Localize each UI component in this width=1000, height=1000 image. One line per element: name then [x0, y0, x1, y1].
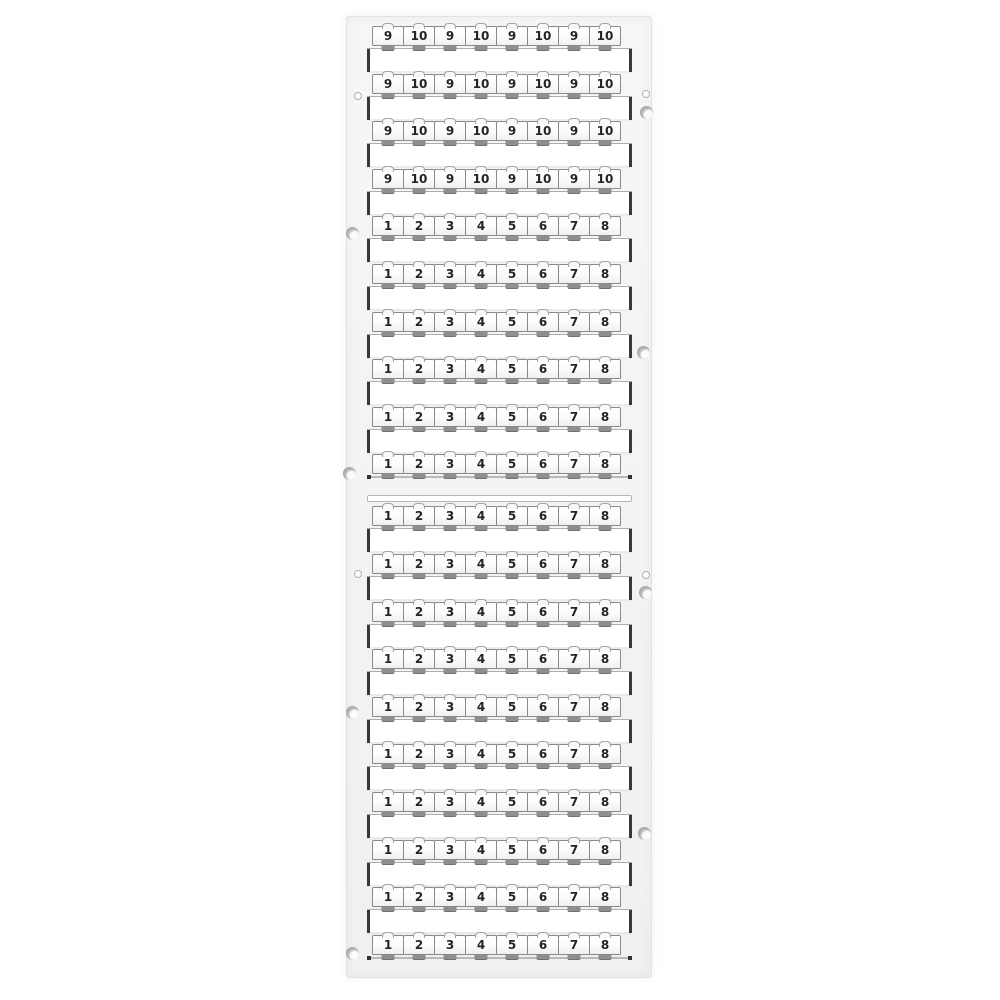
- marker-tag-label: 7: [570, 603, 578, 621]
- marker-tag-label: 5: [508, 745, 516, 763]
- marker-tag-label: 8: [601, 507, 609, 525]
- blank-strip: [367, 334, 632, 358]
- marker-tag: 8: [589, 602, 621, 622]
- marker-tag: 4: [465, 359, 497, 379]
- blank-strip: [367, 719, 632, 743]
- blank-strip: [367, 766, 632, 790]
- blank-strip: [367, 143, 632, 167]
- marker-tag-label: 1: [384, 603, 392, 621]
- blank-strip: [367, 814, 632, 838]
- section-end-line: [367, 476, 632, 478]
- marker-tag-label: 2: [415, 650, 423, 668]
- marker-tag: 8: [589, 649, 621, 669]
- marker-tag-label: 5: [508, 507, 516, 525]
- product-photo: 9109109109109109109109109109109109109109…: [0, 0, 1000, 1000]
- marker-tag-label: 10: [535, 75, 552, 93]
- marker-tag: 4: [465, 697, 497, 717]
- marker-tag: 7: [558, 697, 590, 717]
- marker-tag-label: 6: [539, 555, 547, 573]
- marker-tag-label: 5: [508, 841, 516, 859]
- marker-tag-label: 6: [539, 360, 547, 378]
- marker-tag: 1: [372, 407, 404, 427]
- marker-tag-label: 8: [601, 841, 609, 859]
- marker-tag: 3: [434, 792, 466, 812]
- marker-tag-label: 8: [601, 745, 609, 763]
- blank-strip: [367, 286, 632, 310]
- marker-strip-row: 12345678: [372, 407, 628, 427]
- marker-tag-label: 1: [384, 888, 392, 906]
- marker-tag: 9: [372, 169, 404, 189]
- marker-strip-row: 12345678: [372, 554, 628, 574]
- molded-stud: [346, 706, 359, 719]
- marker-tag-label: 4: [477, 841, 485, 859]
- marker-tag: 1: [372, 840, 404, 860]
- marker-strip-row: 12345678: [372, 506, 628, 526]
- marker-tag-label: 5: [508, 455, 516, 473]
- marker-tag-label: 9: [570, 27, 578, 45]
- marker-tag-label: 5: [508, 217, 516, 235]
- marker-tag: 5: [496, 840, 528, 860]
- marker-tag: 5: [496, 407, 528, 427]
- marker-tag: 10: [527, 74, 559, 94]
- marker-tag: 8: [589, 554, 621, 574]
- marker-tag: 10: [589, 74, 621, 94]
- marker-tag-label: 8: [601, 650, 609, 668]
- marker-strip-row: 12345678: [372, 454, 628, 474]
- marker-tag: 3: [434, 602, 466, 622]
- marker-tag-label: 10: [473, 75, 490, 93]
- marker-tag-label: 8: [601, 555, 609, 573]
- marker-tag: 2: [403, 887, 435, 907]
- marker-tag: 6: [527, 887, 559, 907]
- marker-tag: 2: [403, 792, 435, 812]
- blank-strip: [367, 381, 632, 405]
- marker-tag: 4: [465, 744, 497, 764]
- marker-tag: 4: [465, 216, 497, 236]
- marker-tag: 10: [465, 121, 497, 141]
- marker-tag: 3: [434, 887, 466, 907]
- marker-tag: 2: [403, 840, 435, 860]
- marker-tag-label: 8: [601, 698, 609, 716]
- marker-tag: 9: [372, 121, 404, 141]
- marker-tag: 6: [527, 935, 559, 955]
- marker-tag: 4: [465, 407, 497, 427]
- marker-tag-label: 10: [411, 27, 428, 45]
- marker-tag: 10: [589, 121, 621, 141]
- marker-tag: 6: [527, 506, 559, 526]
- marker-tag: 1: [372, 602, 404, 622]
- marker-tag-label: 4: [477, 408, 485, 426]
- molded-stud: [638, 827, 651, 840]
- marker-tag: 4: [465, 935, 497, 955]
- marker-tag: 4: [465, 792, 497, 812]
- marker-tag-label: 10: [535, 170, 552, 188]
- blank-strip: [367, 862, 632, 886]
- marker-tag-label: 10: [597, 122, 614, 140]
- marker-tag-label: 4: [477, 745, 485, 763]
- marker-tag: 2: [403, 506, 435, 526]
- marker-tag: 8: [589, 454, 621, 474]
- marker-tag-label: 4: [477, 360, 485, 378]
- marker-tag: 9: [558, 169, 590, 189]
- marker-tag: 5: [496, 454, 528, 474]
- marker-tag-label: 2: [415, 408, 423, 426]
- marker-tag: 9: [558, 26, 590, 46]
- marker-tag: 3: [434, 935, 466, 955]
- marker-tag: 4: [465, 887, 497, 907]
- marker-tag: 10: [465, 74, 497, 94]
- marker-tag: 9: [372, 74, 404, 94]
- marker-tag: 9: [434, 74, 466, 94]
- marker-tag-label: 4: [477, 313, 485, 331]
- marker-tag: 7: [558, 887, 590, 907]
- marker-tag: 6: [527, 602, 559, 622]
- marker-tag-label: 2: [415, 793, 423, 811]
- marker-tag: 5: [496, 554, 528, 574]
- section-end-line: [367, 957, 632, 959]
- marker-tag: 2: [403, 649, 435, 669]
- marker-tag-label: 4: [477, 603, 485, 621]
- marker-tag-label: 2: [415, 507, 423, 525]
- marker-strip-row: 12345678: [372, 744, 628, 764]
- marker-tag: 1: [372, 887, 404, 907]
- marker-tag-label: 9: [508, 170, 516, 188]
- marker-tag-label: 6: [539, 455, 547, 473]
- marker-tag-label: 1: [384, 507, 392, 525]
- marker-tag-label: 1: [384, 360, 392, 378]
- marker-tag: 9: [558, 74, 590, 94]
- marker-tag: 1: [372, 359, 404, 379]
- marker-tag-label: 8: [601, 455, 609, 473]
- marker-tag: 7: [558, 649, 590, 669]
- marker-strip-row: 910910910910: [372, 121, 628, 141]
- marker-tag-label: 5: [508, 360, 516, 378]
- marker-tag-label: 6: [539, 265, 547, 283]
- marker-tag: 6: [527, 264, 559, 284]
- marker-tag-label: 7: [570, 650, 578, 668]
- marker-strip-row: 12345678: [372, 935, 628, 955]
- marker-tag-label: 1: [384, 408, 392, 426]
- marker-strip-row: 12345678: [372, 887, 628, 907]
- marker-strip-row: 12345678: [372, 840, 628, 860]
- marker-tag-label: 10: [535, 122, 552, 140]
- marker-tag-label: 6: [539, 217, 547, 235]
- marker-tag: 6: [527, 840, 559, 860]
- marker-tag: 8: [589, 935, 621, 955]
- marker-tag-label: 8: [601, 360, 609, 378]
- marker-tag: 5: [496, 506, 528, 526]
- marker-tag: 2: [403, 935, 435, 955]
- marker-strip-row: 12345678: [372, 359, 628, 379]
- marker-tag-label: 10: [535, 27, 552, 45]
- marker-tag-label: 10: [411, 170, 428, 188]
- marker-tag: 4: [465, 649, 497, 669]
- marker-tag-label: 5: [508, 888, 516, 906]
- marker-tag-label: 1: [384, 313, 392, 331]
- marker-tag: 9: [434, 26, 466, 46]
- marker-tag-label: 7: [570, 455, 578, 473]
- marker-tag-label: 5: [508, 793, 516, 811]
- marker-tag-label: 8: [601, 217, 609, 235]
- marker-tag-label: 8: [601, 888, 609, 906]
- blank-strip: [367, 624, 632, 648]
- marker-tag-label: 7: [570, 936, 578, 954]
- marker-tag: 7: [558, 216, 590, 236]
- marker-tag: 10: [589, 26, 621, 46]
- marker-tag: 6: [527, 792, 559, 812]
- marker-tag: 3: [434, 216, 466, 236]
- marker-tag: 1: [372, 454, 404, 474]
- marker-tag-label: 4: [477, 936, 485, 954]
- marker-tag-label: 3: [446, 555, 454, 573]
- marker-tag-label: 9: [384, 27, 392, 45]
- marker-tag: 3: [434, 649, 466, 669]
- marker-tag-label: 3: [446, 408, 454, 426]
- marker-strip-row: 12345678: [372, 264, 628, 284]
- mounting-hole: [354, 92, 362, 100]
- marker-tag-label: 3: [446, 936, 454, 954]
- marker-tag: 2: [403, 359, 435, 379]
- marker-tag: 6: [527, 359, 559, 379]
- marker-tag: 9: [434, 121, 466, 141]
- marker-tag-label: 9: [446, 27, 454, 45]
- marker-tag: 6: [527, 697, 559, 717]
- marker-tag: 7: [558, 602, 590, 622]
- marker-tag: 8: [589, 264, 621, 284]
- marker-tag-label: 7: [570, 745, 578, 763]
- marker-tag: 7: [558, 359, 590, 379]
- marker-tag: 2: [403, 744, 435, 764]
- marker-tag: 4: [465, 264, 497, 284]
- marker-tag: 3: [434, 554, 466, 574]
- marker-tag-label: 2: [415, 265, 423, 283]
- molded-stud: [346, 947, 359, 960]
- marker-tag-label: 7: [570, 217, 578, 235]
- marker-tag: 1: [372, 697, 404, 717]
- marker-tag-label: 4: [477, 217, 485, 235]
- marker-tag: 4: [465, 554, 497, 574]
- marker-tag-label: 1: [384, 455, 392, 473]
- marker-tag-label: 6: [539, 793, 547, 811]
- marker-tag: 5: [496, 744, 528, 764]
- marker-tag-label: 10: [597, 75, 614, 93]
- marker-tag-label: 3: [446, 698, 454, 716]
- marker-tag: 2: [403, 407, 435, 427]
- marker-tag-label: 1: [384, 217, 392, 235]
- marker-tag-label: 6: [539, 888, 547, 906]
- marker-tag-label: 6: [539, 698, 547, 716]
- marker-tag: 9: [496, 26, 528, 46]
- blank-strip: [367, 671, 632, 695]
- marker-tag: 1: [372, 792, 404, 812]
- marker-strip-row: 910910910910: [372, 26, 628, 46]
- marker-tag-label: 5: [508, 603, 516, 621]
- marker-tag-label: 4: [477, 650, 485, 668]
- section-lower-half: 1234567812345678123456781234567812345678…: [367, 495, 632, 958]
- marker-tag-label: 9: [570, 75, 578, 93]
- marker-strip-row: 12345678: [372, 649, 628, 669]
- marker-strip-row: 12345678: [372, 312, 628, 332]
- marker-tag-label: 7: [570, 698, 578, 716]
- marker-tag-label: 2: [415, 841, 423, 859]
- marker-tag: 5: [496, 602, 528, 622]
- marker-tag-label: 3: [446, 745, 454, 763]
- marker-tag: 9: [496, 74, 528, 94]
- marker-tag: 5: [496, 792, 528, 812]
- marker-tag-label: 1: [384, 265, 392, 283]
- marker-tag: 9: [496, 121, 528, 141]
- marker-tag: 9: [558, 121, 590, 141]
- marker-tag: 6: [527, 554, 559, 574]
- marker-tag-label: 10: [473, 170, 490, 188]
- blank-strip: [367, 238, 632, 262]
- marker-tag-label: 7: [570, 793, 578, 811]
- marker-tag: 2: [403, 264, 435, 284]
- marker-tag: 8: [589, 359, 621, 379]
- marker-tag: 7: [558, 935, 590, 955]
- marker-tag-label: 8: [601, 313, 609, 331]
- marker-tag-label: 3: [446, 603, 454, 621]
- marker-tag: 2: [403, 602, 435, 622]
- marker-tag-label: 3: [446, 507, 454, 525]
- blank-strip: [367, 429, 632, 453]
- marker-tag-label: 10: [411, 122, 428, 140]
- marker-tag-label: 1: [384, 698, 392, 716]
- marker-tag-label: 6: [539, 841, 547, 859]
- marker-tag-label: 1: [384, 936, 392, 954]
- marker-tag: 3: [434, 744, 466, 764]
- marker-tag: 10: [403, 26, 435, 46]
- marker-tag-label: 8: [601, 936, 609, 954]
- marker-tag-label: 8: [601, 408, 609, 426]
- marker-tag-label: 6: [539, 936, 547, 954]
- marker-tag-label: 9: [508, 75, 516, 93]
- marker-tag-label: 4: [477, 507, 485, 525]
- marker-tag-label: 3: [446, 217, 454, 235]
- marker-tag-label: 3: [446, 265, 454, 283]
- molded-stud: [343, 467, 356, 480]
- marker-tag-label: 2: [415, 217, 423, 235]
- marker-tag: 10: [465, 169, 497, 189]
- marker-rows: 9109109109109109109109109109109109109109…: [367, 26, 632, 959]
- marker-tag: 8: [589, 887, 621, 907]
- marker-tag-label: 3: [446, 793, 454, 811]
- marker-tag: 5: [496, 216, 528, 236]
- marker-strip-row: 12345678: [372, 602, 628, 622]
- marker-tag-label: 3: [446, 841, 454, 859]
- marker-tag-label: 2: [415, 936, 423, 954]
- marker-tag: 10: [465, 26, 497, 46]
- marker-tag-label: 2: [415, 455, 423, 473]
- marker-tag: 2: [403, 554, 435, 574]
- section-upper-half: 9109109109109109109109109109109109109109…: [367, 26, 632, 478]
- marker-tag-label: 7: [570, 265, 578, 283]
- marker-tag: 7: [558, 312, 590, 332]
- marker-tag-label: 9: [384, 122, 392, 140]
- marker-tag: 5: [496, 312, 528, 332]
- marker-tag-label: 9: [446, 170, 454, 188]
- marker-tag-label: 9: [508, 27, 516, 45]
- marker-tag-label: 3: [446, 455, 454, 473]
- marker-tag-label: 5: [508, 936, 516, 954]
- marker-tag-label: 9: [570, 170, 578, 188]
- marker-strip-row: 910910910910: [372, 169, 628, 189]
- spacer-strip: [367, 495, 632, 502]
- marker-tag-label: 7: [570, 313, 578, 331]
- marker-tag: 5: [496, 887, 528, 907]
- marker-tag: 1: [372, 312, 404, 332]
- marker-tag: 2: [403, 216, 435, 236]
- marker-tag-label: 1: [384, 793, 392, 811]
- marker-tag-label: 1: [384, 650, 392, 668]
- blank-strip: [367, 576, 632, 600]
- marker-tag-label: 4: [477, 265, 485, 283]
- marker-tag: 1: [372, 506, 404, 526]
- marker-tag-label: 8: [601, 603, 609, 621]
- marker-tag: 8: [589, 697, 621, 717]
- marker-tag-label: 6: [539, 313, 547, 331]
- marker-tag-label: 10: [597, 27, 614, 45]
- blank-strip: [367, 528, 632, 552]
- marker-tag: 9: [434, 169, 466, 189]
- marker-tag-label: 4: [477, 455, 485, 473]
- marker-tag: 4: [465, 312, 497, 332]
- marker-tag: 7: [558, 454, 590, 474]
- blank-strip: [367, 48, 632, 72]
- marker-tag: 3: [434, 506, 466, 526]
- marker-tag: 1: [372, 935, 404, 955]
- marker-tag: 1: [372, 216, 404, 236]
- marker-tag-label: 3: [446, 360, 454, 378]
- marker-strip-row: 12345678: [372, 216, 628, 236]
- marker-tag: 6: [527, 649, 559, 669]
- marker-tag-label: 9: [384, 75, 392, 93]
- marker-tag-label: 7: [570, 408, 578, 426]
- marker-tag-label: 10: [473, 27, 490, 45]
- marker-tag-label: 9: [384, 170, 392, 188]
- marker-tag: 8: [589, 744, 621, 764]
- marker-tag-label: 5: [508, 698, 516, 716]
- mounting-hole: [642, 571, 650, 579]
- marker-tag-label: 5: [508, 650, 516, 668]
- marker-tag-label: 7: [570, 841, 578, 859]
- marker-tag: 10: [527, 121, 559, 141]
- marker-tag-label: 7: [570, 888, 578, 906]
- marker-tag-label: 6: [539, 603, 547, 621]
- marker-tag: 6: [527, 216, 559, 236]
- marker-tag: 5: [496, 935, 528, 955]
- marker-tag: 10: [403, 121, 435, 141]
- marker-tag: 10: [403, 74, 435, 94]
- marker-tag-label: 3: [446, 650, 454, 668]
- marker-tag: 7: [558, 840, 590, 860]
- marker-tag: 3: [434, 407, 466, 427]
- marker-tag: 2: [403, 697, 435, 717]
- marker-tag-label: 8: [601, 793, 609, 811]
- blank-strip: [367, 191, 632, 215]
- marker-tag: 10: [527, 169, 559, 189]
- mounting-hole: [354, 570, 362, 578]
- marker-tag-label: 1: [384, 555, 392, 573]
- marker-tag: 10: [527, 26, 559, 46]
- marker-tag: 4: [465, 506, 497, 526]
- marker-tag: 8: [589, 792, 621, 812]
- marker-tag: 1: [372, 264, 404, 284]
- marker-tag: 9: [496, 169, 528, 189]
- marker-tag: 5: [496, 697, 528, 717]
- marker-tag-label: 6: [539, 507, 547, 525]
- marker-tag: 3: [434, 264, 466, 284]
